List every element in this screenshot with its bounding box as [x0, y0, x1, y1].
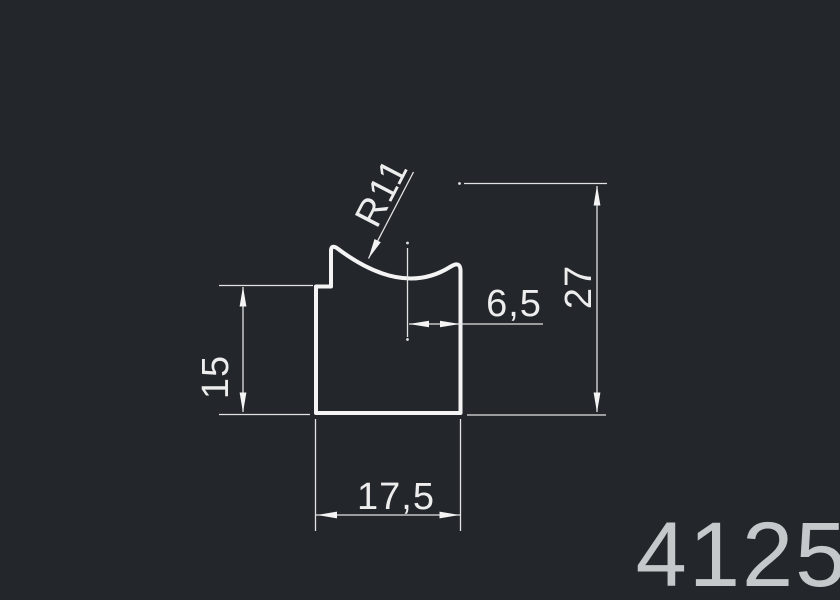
radius-leader-arrow [369, 239, 381, 259]
profile-outline [316, 247, 461, 413]
centerline-dot-bottom [406, 338, 409, 341]
height-arrow-top [594, 186, 601, 206]
height-arrow-bottom [594, 393, 601, 413]
radius-label: R11 [347, 152, 416, 233]
offset-arrow-left [409, 321, 429, 327]
height-ext-dot [458, 182, 461, 185]
centerline-dot-top [406, 242, 409, 245]
dim-left-height: 15 [195, 286, 313, 415]
bottom-width-arrow-left [317, 512, 337, 519]
offset-arrow-right [440, 321, 460, 327]
bottom-width-arrow-right [440, 512, 460, 519]
dim-bottom-width: 17,5 [316, 419, 461, 531]
cad-drawing-canvas: R11 6,5 27 15 [0, 0, 840, 600]
left-height-arrow-bottom [240, 393, 247, 413]
cad-drawing-svg: R11 6,5 27 15 [0, 0, 840, 600]
height-value: 27 [558, 265, 600, 309]
offset-value: 6,5 [486, 283, 542, 325]
profile-number: 4125 [636, 504, 840, 600]
left-height-value: 15 [195, 355, 237, 399]
arc-centerline [406, 242, 409, 341]
left-height-arrow-top [240, 287, 247, 307]
bottom-width-value: 17,5 [357, 476, 435, 518]
dim-center-offset: 6,5 [409, 283, 543, 327]
